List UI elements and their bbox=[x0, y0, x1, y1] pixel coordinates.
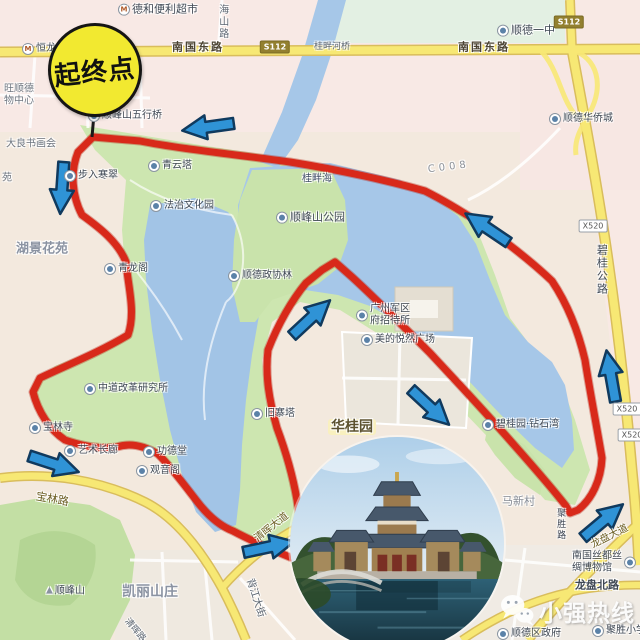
start-end-marker: 起终点 bbox=[48, 23, 142, 117]
huaguiyuan-photo-inset bbox=[290, 437, 504, 640]
school-block bbox=[323, 0, 565, 43]
road-badge: X520 bbox=[613, 403, 640, 416]
gate-photo bbox=[290, 437, 504, 640]
wechat-icon bbox=[498, 590, 536, 632]
watermark-brand: 小强热线 bbox=[539, 594, 635, 628]
watermark: 小强热线 bbox=[498, 590, 635, 632]
road-badge: S112 bbox=[260, 41, 290, 54]
road-badge: X520 bbox=[579, 220, 608, 233]
start-end-label: 起终点 bbox=[53, 47, 137, 92]
road-badge: X520 bbox=[618, 429, 640, 442]
road-badge: S112 bbox=[554, 16, 584, 29]
start-marker-stem bbox=[92, 114, 94, 137]
route-map-image: M德和便利超市海山路南国东路桂畔河桥南国东路顺德一中M恒龙旺顺德物中心顺德华侨城… bbox=[0, 0, 640, 640]
